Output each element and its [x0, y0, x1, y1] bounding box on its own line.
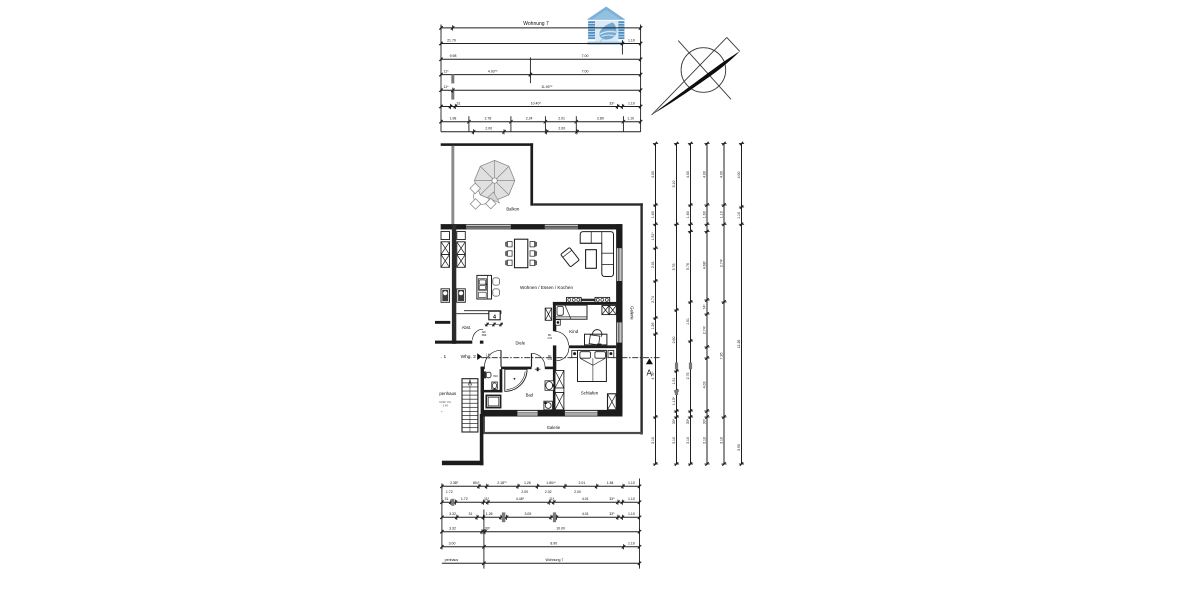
svg-text:KOFF OG: KOFF OG: [439, 400, 451, 404]
svg-text:2.01: 2.01: [547, 358, 552, 361]
svg-text:1.10: 1.10: [628, 497, 635, 501]
svg-text:4.00: 4.00: [686, 171, 690, 178]
svg-text:4.46⁵: 4.46⁵: [516, 497, 525, 501]
svg-text:1.10: 1.10: [628, 542, 635, 546]
svg-text:⌄: ⌄: [440, 409, 443, 413]
svg-text:11⁶: 11⁶: [443, 70, 449, 74]
svg-text:33⁵: 33⁵: [485, 527, 491, 531]
svg-text:1.26: 1.26: [524, 481, 531, 485]
svg-text:7.26: 7.26: [719, 353, 723, 360]
svg-text:Diele: Diele: [516, 341, 526, 346]
svg-text:74⁵: 74⁵: [702, 304, 706, 310]
svg-text:2.74⁵: 2.74⁵: [719, 258, 723, 267]
svg-text:4.00: 4.00: [702, 171, 706, 178]
svg-text:1.84: 1.84: [607, 481, 614, 485]
svg-text:D99: D99: [482, 334, 487, 337]
svg-text:penhaus: penhaus: [439, 391, 457, 396]
svg-text:21.79: 21.79: [447, 38, 456, 42]
svg-text:1.72: 1.72: [461, 497, 468, 501]
svg-text:Balkon: Balkon: [506, 207, 519, 212]
svg-text:1.51⁵: 1.51⁵: [651, 232, 655, 241]
svg-text:33⁵: 33⁵: [686, 418, 690, 424]
svg-text:Wohnung 7: Wohnung 7: [545, 558, 563, 562]
svg-text:1.10: 1.10: [627, 117, 634, 121]
svg-text:2.02: 2.02: [545, 490, 552, 494]
svg-text:1.10: 1.10: [628, 101, 635, 105]
svg-text:80²⁵: 80²⁵: [473, 481, 480, 485]
svg-text:Kind: Kind: [569, 329, 579, 334]
svg-text:3.10: 3.10: [719, 437, 723, 444]
svg-text:2.00: 2.00: [485, 127, 492, 131]
svg-text:4.01: 4.01: [582, 497, 589, 501]
svg-text:3.10: 3.10: [686, 437, 690, 444]
svg-text:3.10: 3.10: [702, 437, 706, 444]
svg-text:3.32: 3.32: [449, 527, 456, 531]
svg-text:4.93⁷⁵: 4.93⁷⁵: [488, 70, 498, 74]
svg-text:2.01: 2.01: [578, 481, 585, 485]
svg-text:Galerie: Galerie: [547, 425, 561, 430]
svg-text:1.80²⁵: 1.80²⁵: [546, 481, 556, 485]
svg-text:11⁵: 11⁵: [484, 497, 490, 501]
svg-text:8.90: 8.90: [550, 542, 557, 546]
svg-text:Abst.: Abst.: [462, 325, 472, 330]
svg-text:A: A: [647, 369, 653, 378]
svg-text:penhaus: penhaus: [445, 558, 459, 562]
svg-text:5.10: 5.10: [672, 181, 676, 188]
svg-text:11⁵: 11⁵: [549, 497, 555, 501]
svg-text:4.00: 4.00: [719, 171, 723, 178]
svg-text:9.98: 9.98: [450, 54, 457, 58]
svg-text:Whg. 2: Whg. 2: [461, 354, 477, 360]
svg-text:2.00: 2.00: [558, 127, 565, 131]
svg-text:WC: WC: [493, 374, 499, 378]
svg-text:7.00: 7.00: [582, 54, 589, 58]
svg-text:1.10: 1.10: [737, 212, 741, 219]
svg-text:33⁵: 33⁵: [672, 418, 676, 424]
svg-text:3.00: 3.00: [449, 542, 456, 546]
svg-text:- 2.48: - 2.48: [441, 404, 448, 408]
svg-text:2.00: 2.00: [521, 490, 528, 494]
svg-text:2.38⁵: 2.38⁵: [450, 481, 459, 485]
svg-text:Galerie: Galerie: [630, 306, 635, 320]
svg-text:7.00: 7.00: [582, 70, 589, 74]
svg-text:33⁶: 33⁶: [702, 418, 706, 424]
svg-text:31: 31: [457, 101, 461, 105]
svg-text:2.60: 2.60: [672, 337, 676, 344]
svg-text:1.60: 1.60: [702, 211, 706, 218]
svg-text:1.72: 1.72: [446, 490, 453, 494]
svg-text:2.24: 2.24: [526, 117, 533, 121]
svg-text:5.76: 5.76: [686, 263, 690, 270]
svg-text:3.09: 3.09: [524, 512, 531, 516]
svg-text:4: 4: [493, 314, 496, 320]
svg-text:1.26: 1.26: [486, 512, 493, 516]
svg-text:3.32: 3.32: [449, 512, 456, 516]
svg-text:11.90⁷⁵: 11.90⁷⁵: [541, 85, 553, 89]
svg-text:Schlafen: Schlafen: [581, 390, 599, 395]
svg-text:1.51: 1.51: [686, 318, 690, 325]
svg-text:4.01: 4.01: [582, 512, 589, 516]
svg-text:10.40⁵: 10.40⁵: [531, 101, 542, 105]
svg-text:2.74: 2.74: [651, 296, 655, 303]
svg-text:2.01: 2.01: [558, 117, 565, 121]
svg-text:Bad: Bad: [526, 392, 534, 397]
svg-text:1.51: 1.51: [672, 378, 676, 385]
svg-text:. 1: . 1: [441, 354, 447, 360]
svg-text:1.10: 1.10: [628, 38, 635, 42]
svg-text:1.60: 1.60: [651, 211, 655, 218]
svg-text:Wohnung 7: Wohnung 7: [523, 21, 549, 27]
svg-text:2.01: 2.01: [651, 261, 655, 268]
svg-text:4.00: 4.00: [737, 172, 741, 179]
svg-text:3.10: 3.10: [651, 437, 655, 444]
svg-text:3.10: 3.10: [672, 437, 676, 444]
svg-text:2.18⁷⁵: 2.18⁷⁵: [497, 481, 507, 485]
svg-text:2.01: 2.01: [486, 357, 491, 360]
svg-text:12.26: 12.26: [737, 340, 741, 349]
svg-text:2.76: 2.76: [686, 373, 690, 380]
svg-text:33⁶: 33⁶: [609, 101, 615, 105]
svg-text:2.00: 2.00: [574, 490, 581, 494]
svg-text:2.89: 2.89: [597, 117, 604, 121]
svg-text:11⁶: 11⁶: [443, 85, 449, 89]
svg-text:1.10: 1.10: [628, 512, 635, 516]
svg-text:31: 31: [469, 512, 473, 516]
svg-text:31: 31: [445, 497, 449, 501]
svg-text:3.90: 3.90: [737, 444, 741, 451]
svg-text:1.98: 1.98: [449, 117, 456, 121]
svg-text:10.00: 10.00: [556, 527, 565, 531]
svg-text:4.00: 4.00: [651, 171, 655, 178]
svg-text:1.10: 1.10: [719, 211, 723, 218]
svg-text:1.10: 1.10: [628, 481, 635, 485]
svg-text:1.60: 1.60: [686, 211, 690, 218]
svg-text:4.68⁵: 4.68⁵: [702, 260, 706, 269]
svg-text:2.78: 2.78: [484, 117, 491, 121]
svg-text:1.13⁵: 1.13⁵: [672, 396, 676, 405]
svg-text:33⁵: 33⁵: [609, 497, 615, 501]
svg-text:Wohnen / Essen / Kochen: Wohnen / Essen / Kochen: [520, 285, 573, 290]
svg-text:2.01: 2.01: [547, 337, 552, 340]
svg-text:1.26: 1.26: [651, 323, 655, 330]
svg-text:5.76: 5.76: [672, 264, 676, 271]
svg-text:2.74⁵: 2.74⁵: [702, 325, 706, 334]
svg-text:33⁵: 33⁵: [609, 512, 615, 516]
svg-text:4.03: 4.03: [702, 382, 706, 389]
